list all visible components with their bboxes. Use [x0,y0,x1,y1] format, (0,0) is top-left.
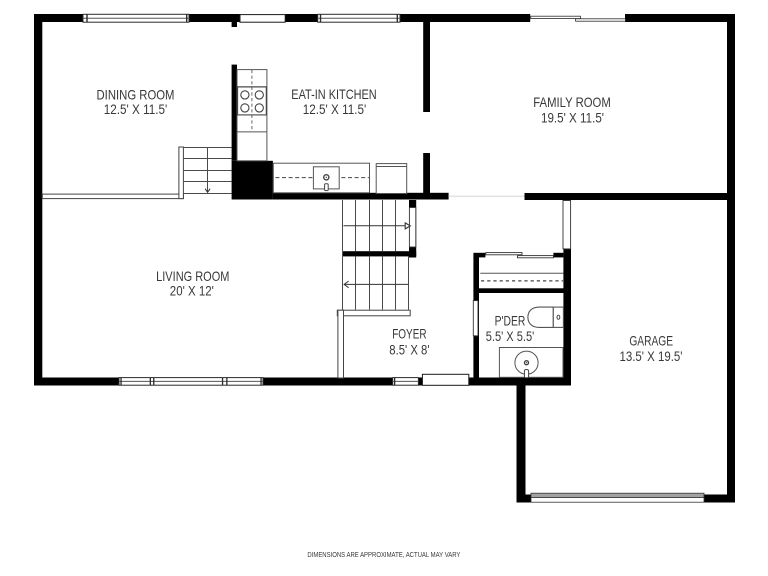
svg-text:20' X 12': 20' X 12' [170,282,214,298]
svg-text:5.5' X 5.5': 5.5' X 5.5' [486,328,535,344]
svg-text:FAMILY ROOM: FAMILY ROOM [533,94,611,110]
svg-text:LIVING ROOM: LIVING ROOM [156,268,229,284]
svg-text:EAT-IN KITCHEN: EAT-IN KITCHEN [291,86,376,102]
svg-text:FOYER: FOYER [392,326,426,342]
svg-text:DIMENSIONS ARE APPROXIMATE, AC: DIMENSIONS ARE APPROXIMATE, ACTUAL MAY V… [307,552,460,559]
svg-text:8.5' X 8': 8.5' X 8' [389,342,429,358]
svg-text:19.5' X 11.5': 19.5' X 11.5' [541,110,604,126]
svg-text:P'DER: P'DER [495,313,526,329]
svg-text:12.5' X 11.5': 12.5' X 11.5' [303,101,367,117]
svg-text:GARAGE: GARAGE [629,332,673,348]
svg-text:13.5' X 19.5': 13.5' X 19.5' [620,348,683,364]
svg-text:12.5' X 11.5': 12.5' X 11.5' [104,101,168,117]
